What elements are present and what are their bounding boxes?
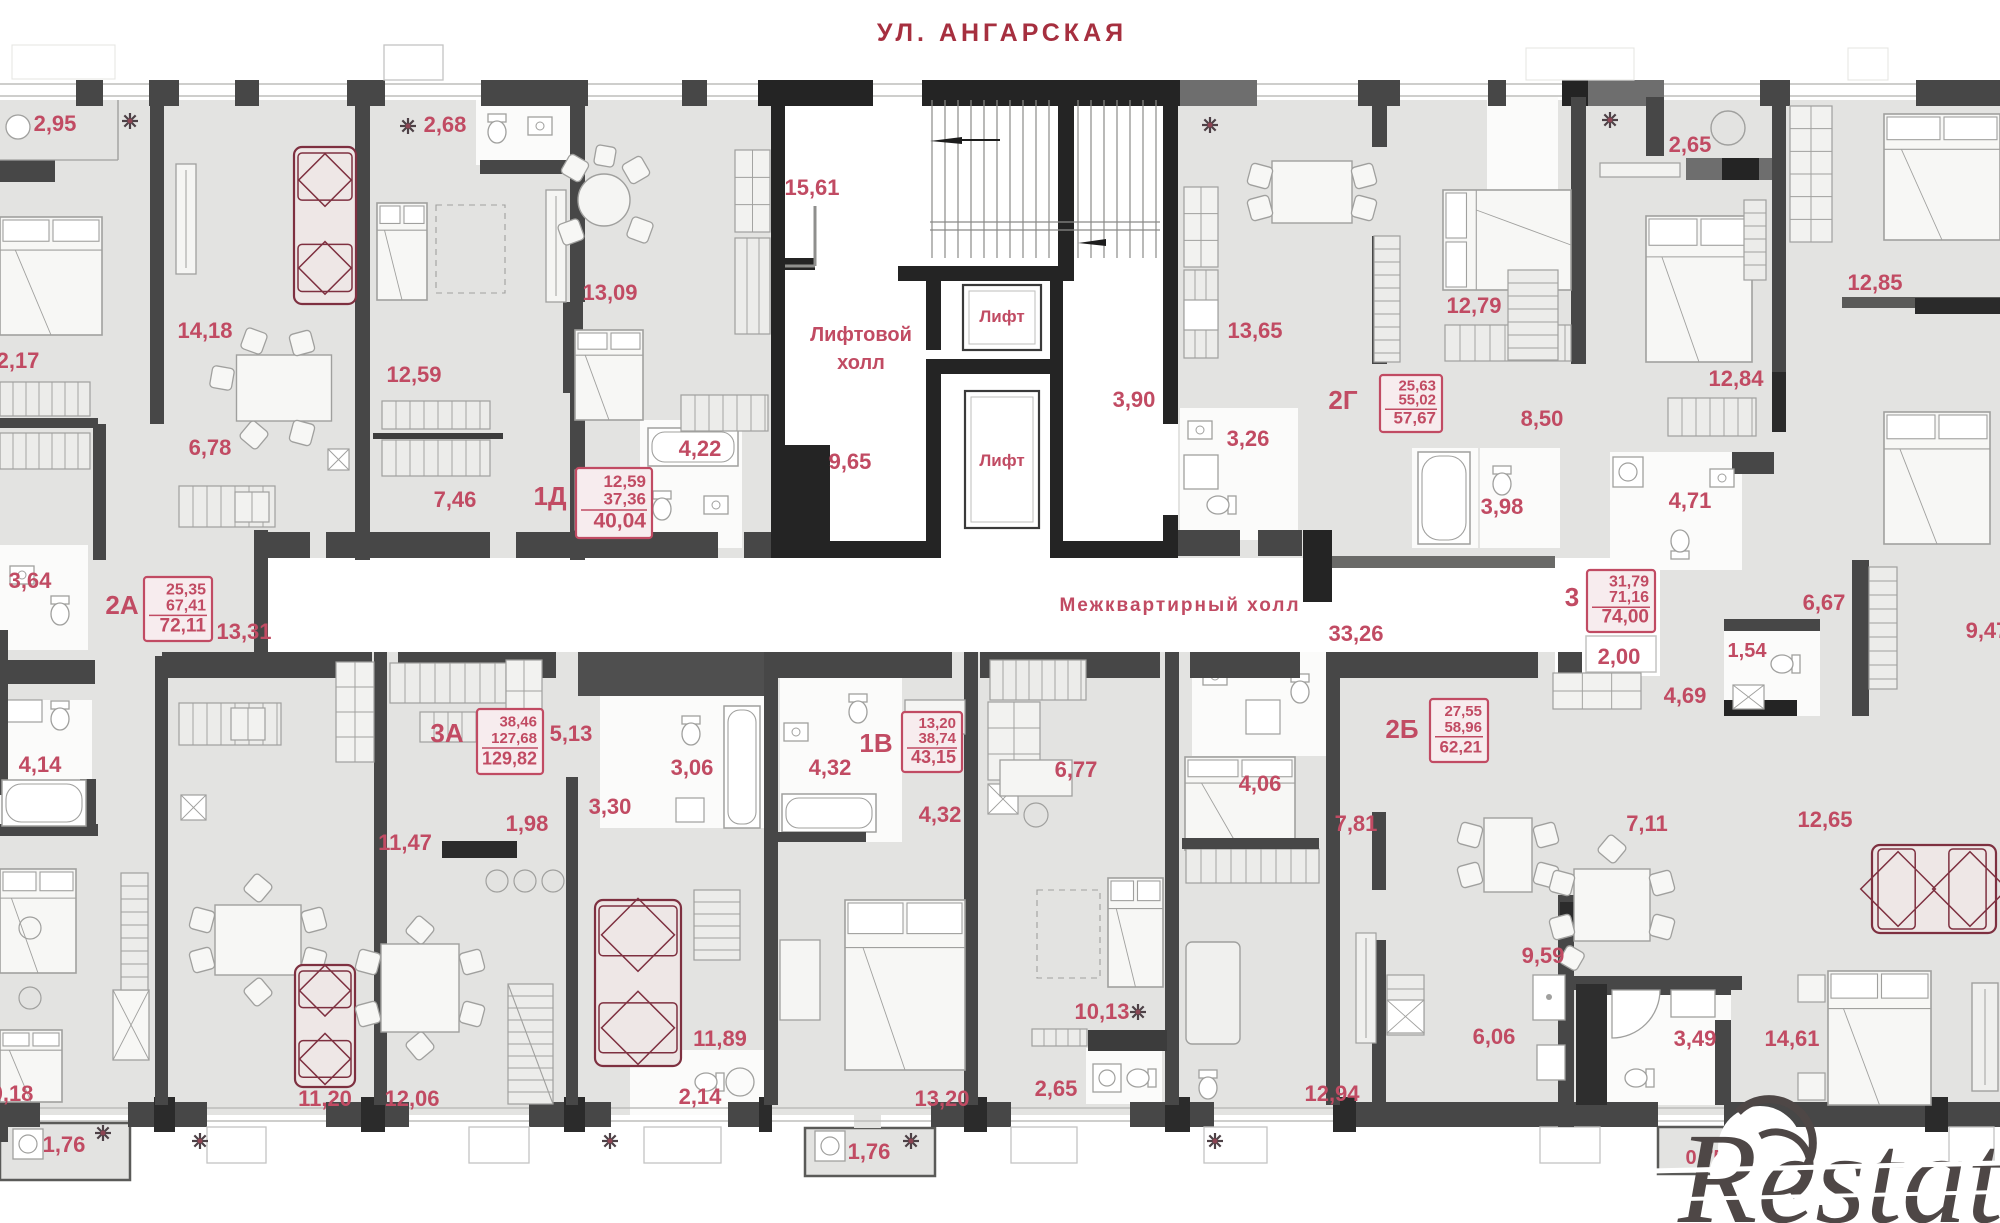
svg-text:Лифт: Лифт — [979, 307, 1024, 326]
svg-text:13,31: 13,31 — [216, 619, 271, 644]
svg-text:6,06: 6,06 — [1473, 1024, 1516, 1049]
svg-text:13,09: 13,09 — [582, 280, 637, 305]
svg-text:холл: холл — [837, 352, 885, 374]
svg-text:2,14: 2,14 — [679, 1084, 723, 1109]
svg-text:12,06: 12,06 — [384, 1086, 439, 1111]
svg-text:74,00: 74,00 — [1601, 607, 1649, 628]
svg-text:12,59: 12,59 — [603, 472, 646, 491]
svg-text:12,59: 12,59 — [386, 362, 441, 387]
svg-text:4,14: 4,14 — [19, 752, 63, 777]
svg-text:Лифт: Лифт — [979, 451, 1024, 470]
svg-text:38,74: 38,74 — [918, 730, 956, 747]
svg-text:12,85: 12,85 — [1847, 270, 1902, 295]
svg-text:6,77: 6,77 — [1055, 757, 1098, 782]
svg-text:7,81: 7,81 — [1335, 811, 1378, 836]
svg-text:9,65: 9,65 — [829, 449, 872, 474]
svg-text:43,15: 43,15 — [911, 747, 956, 767]
svg-text:13,20: 13,20 — [914, 1086, 969, 1111]
svg-text:4,69: 4,69 — [1664, 683, 1707, 708]
svg-text:71,16: 71,16 — [1609, 589, 1649, 606]
svg-text:127,68: 127,68 — [491, 730, 537, 747]
svg-text:58,96: 58,96 — [1444, 719, 1482, 736]
svg-text:62,21: 62,21 — [1439, 738, 1482, 757]
svg-text:3,30: 3,30 — [589, 794, 632, 819]
svg-text:Межквартирный холл: Межквартирный холл — [1059, 595, 1300, 616]
svg-text:4,06: 4,06 — [1239, 771, 1282, 796]
svg-text:УЛ. АНГАРСКАЯ: УЛ. АНГАРСКАЯ — [877, 19, 1127, 47]
svg-text:1,54: 1,54 — [1728, 640, 1768, 662]
svg-text:Лифтовой: Лифтовой — [810, 324, 912, 346]
svg-text:57,67: 57,67 — [1393, 408, 1436, 427]
svg-text:2А: 2А — [105, 590, 138, 620]
svg-text:33,26: 33,26 — [1328, 621, 1383, 646]
svg-text:11,89: 11,89 — [693, 1026, 747, 1051]
svg-text:3А: 3А — [430, 718, 463, 748]
svg-text:2Б: 2Б — [1385, 714, 1418, 744]
svg-text:15,61: 15,61 — [784, 175, 839, 200]
svg-text:11,20: 11,20 — [298, 1086, 352, 1111]
svg-text:67,41: 67,41 — [166, 597, 206, 614]
svg-text:14,18: 14,18 — [177, 318, 232, 343]
svg-text:2,95: 2,95 — [34, 111, 77, 136]
svg-text:1Д: 1Д — [534, 481, 567, 511]
svg-text:40,04: 40,04 — [593, 510, 646, 533]
svg-text:2,68: 2,68 — [424, 112, 467, 137]
svg-text:6,67: 6,67 — [1803, 590, 1846, 615]
svg-text:13,65: 13,65 — [1227, 318, 1282, 343]
svg-text:4,22: 4,22 — [679, 436, 722, 461]
svg-text:27,55: 27,55 — [1444, 703, 1482, 720]
svg-text:9,59: 9,59 — [1522, 943, 1565, 968]
svg-text:2,65: 2,65 — [1669, 132, 1712, 157]
svg-text:72,11: 72,11 — [160, 615, 207, 636]
svg-text:38,46: 38,46 — [499, 714, 537, 731]
svg-text:3,06: 3,06 — [671, 755, 714, 780]
svg-text:2,65: 2,65 — [1035, 1076, 1078, 1101]
svg-text:1,76: 1,76 — [848, 1139, 891, 1164]
svg-text:4,32: 4,32 — [919, 802, 962, 827]
svg-text:12,84: 12,84 — [1708, 366, 1764, 391]
svg-text:3,26: 3,26 — [1227, 426, 1270, 451]
svg-text:12,79: 12,79 — [1446, 293, 1501, 318]
svg-text:6,78: 6,78 — [189, 435, 232, 460]
svg-text:25,35: 25,35 — [166, 581, 206, 598]
svg-text:2,00: 2,00 — [1598, 644, 1641, 669]
svg-text:11,47: 11,47 — [378, 830, 432, 855]
svg-text:37,36: 37,36 — [603, 489, 646, 508]
svg-text:31,79: 31,79 — [1609, 574, 1649, 591]
svg-text:3,49: 3,49 — [1674, 1026, 1717, 1051]
svg-text:4,32: 4,32 — [809, 755, 852, 780]
svg-text:2Г: 2Г — [1328, 385, 1357, 415]
svg-text:3,98: 3,98 — [1481, 494, 1524, 519]
svg-text:5,13: 5,13 — [550, 721, 593, 746]
svg-text:12,94: 12,94 — [1304, 1081, 1360, 1106]
svg-text:129,82: 129,82 — [482, 748, 537, 768]
svg-text:9,18: 9,18 — [0, 1081, 33, 1106]
svg-text:3,90: 3,90 — [1113, 387, 1156, 412]
svg-text:4,71: 4,71 — [1669, 488, 1712, 513]
svg-text:55,02: 55,02 — [1398, 392, 1436, 409]
svg-text:12,65: 12,65 — [1797, 807, 1852, 832]
svg-text:1,98: 1,98 — [506, 811, 549, 836]
svg-text:9,47: 9,47 — [1966, 618, 2000, 643]
svg-text:2,17: 2,17 — [0, 348, 39, 373]
svg-text:8,50: 8,50 — [1521, 406, 1564, 431]
svg-text:1В: 1В — [859, 728, 892, 758]
svg-text:10,13: 10,13 — [1074, 999, 1129, 1024]
svg-text:7,11: 7,11 — [1626, 811, 1668, 836]
svg-text:14,61: 14,61 — [1764, 1026, 1819, 1051]
svg-text:7,46: 7,46 — [434, 487, 477, 512]
svg-text:3,64: 3,64 — [9, 568, 53, 593]
svg-text:1,76: 1,76 — [43, 1132, 86, 1157]
svg-text:3: 3 — [1565, 582, 1579, 612]
